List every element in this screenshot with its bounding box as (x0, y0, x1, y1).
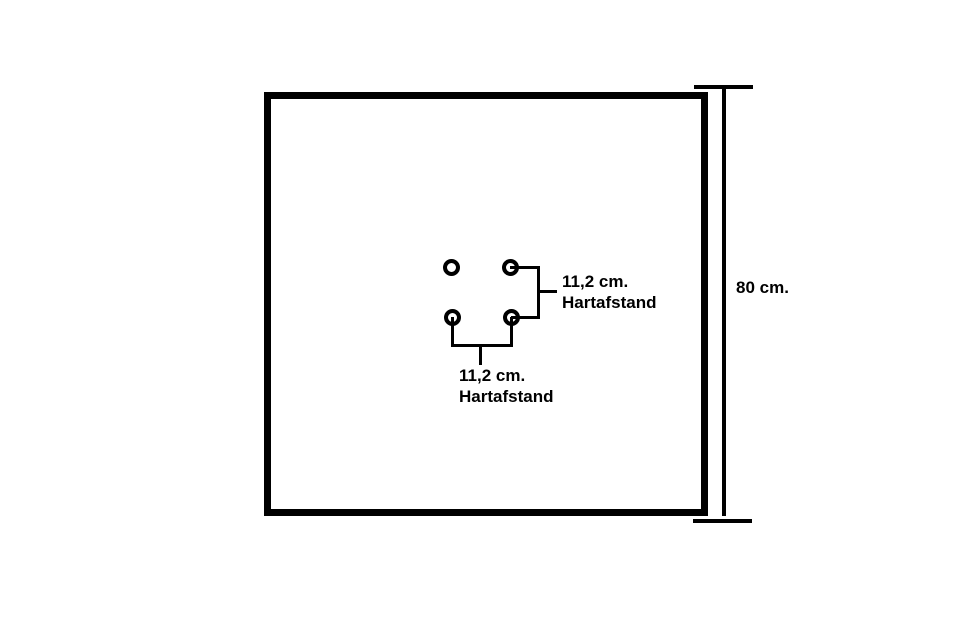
vertical-spacing-bracket-tick (540, 290, 557, 293)
vertical-spacing-value: 11,2 cm. (562, 271, 656, 292)
horizontal-spacing-label: 11,2 cm. Hartafstand (459, 365, 553, 407)
drawing-canvas: 80 cm. 11,2 cm. Hartafstand 11,2 cm. Har… (0, 0, 960, 640)
height-dim-bottom-tick (693, 519, 752, 523)
horizontal-spacing-name: Hartafstand (459, 386, 553, 407)
hole-bottom-right (503, 309, 520, 326)
hole-top-left (443, 259, 460, 276)
height-dim-line (722, 89, 726, 516)
hole-bottom-left (444, 309, 461, 326)
hole-top-right (502, 259, 519, 276)
vertical-spacing-name: Hartafstand (562, 292, 656, 313)
height-dim-label: 80 cm. (736, 277, 789, 298)
horizontal-spacing-bracket-tick (479, 346, 482, 365)
horizontal-spacing-value: 11,2 cm. (459, 365, 553, 386)
vertical-spacing-label: 11,2 cm. Hartafstand (562, 271, 656, 313)
